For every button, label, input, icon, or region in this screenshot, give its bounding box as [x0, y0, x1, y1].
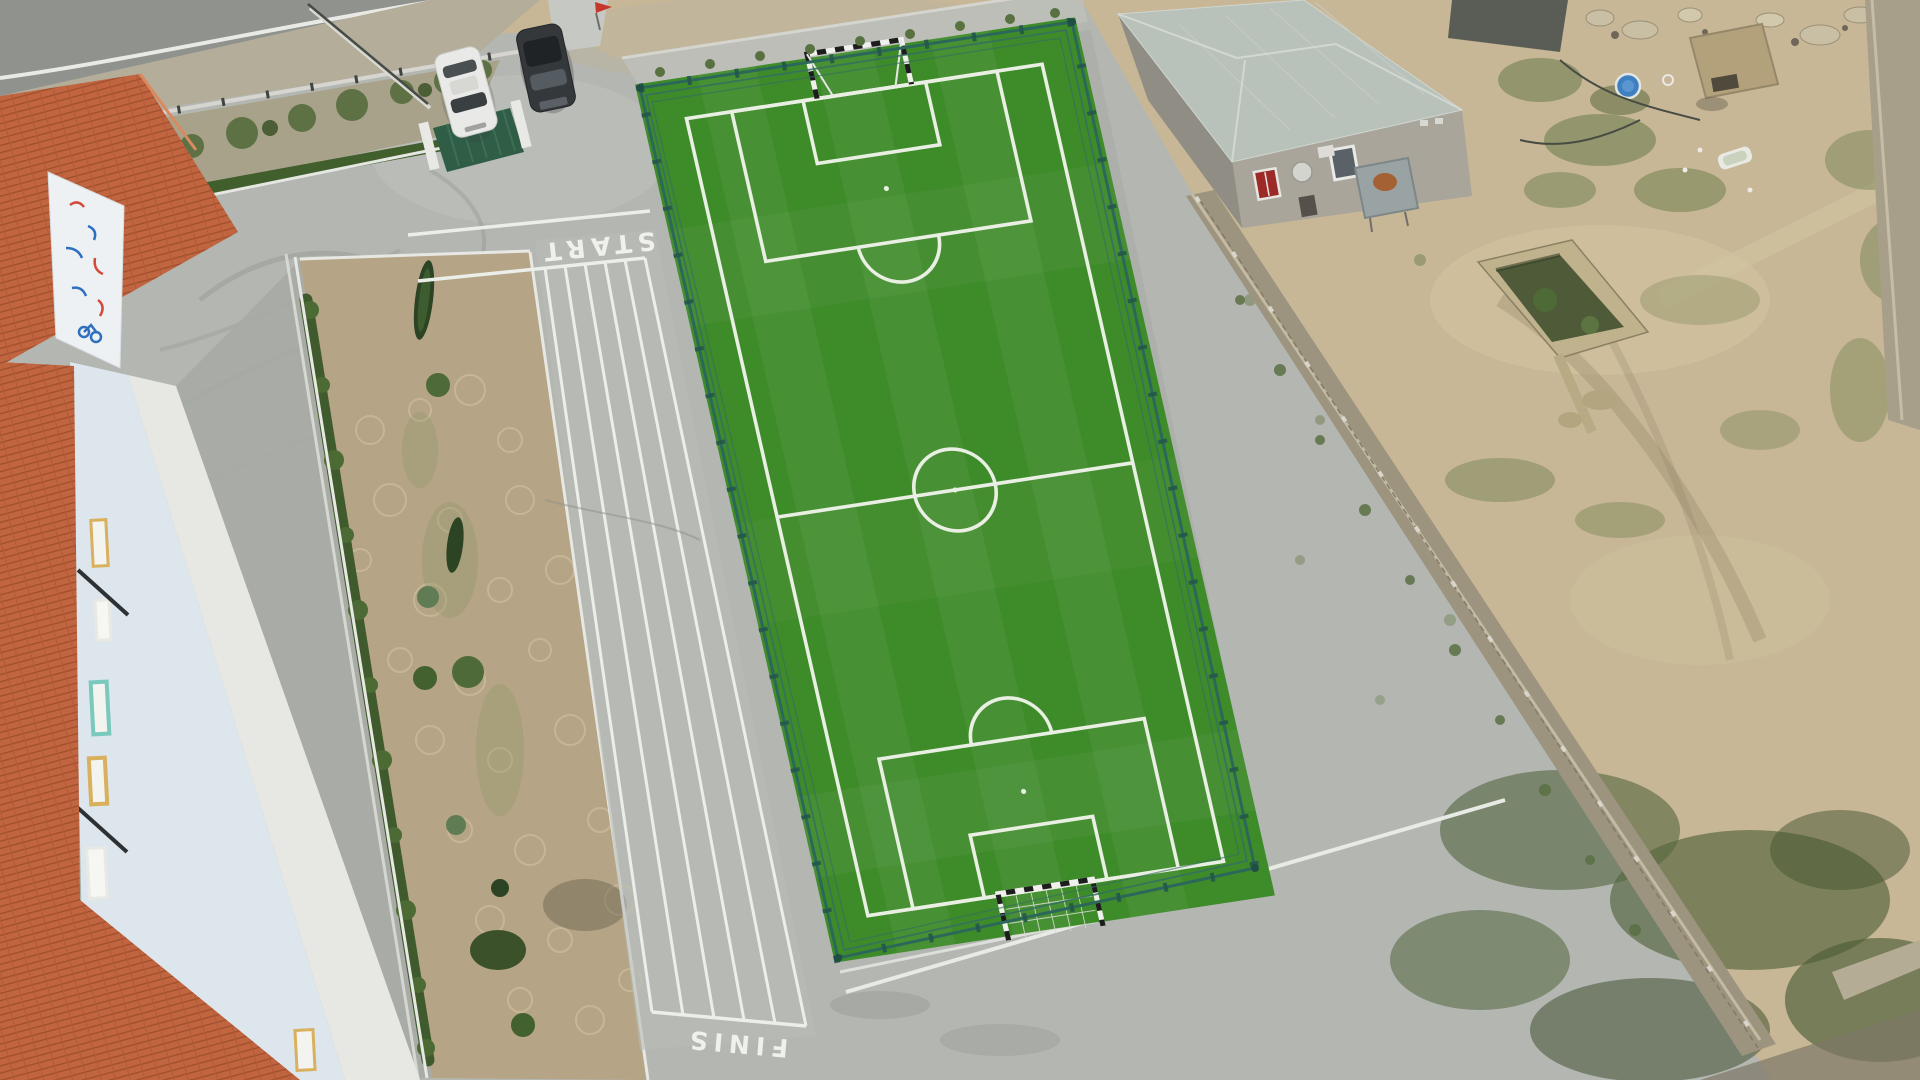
bush — [413, 666, 437, 690]
big-bush — [470, 930, 526, 970]
corner-post — [834, 954, 842, 962]
pine — [452, 656, 484, 688]
bush — [511, 1013, 535, 1037]
corner-post — [636, 84, 644, 92]
bush — [426, 373, 450, 397]
aerial-photo: START FINIS — [0, 0, 1920, 1080]
scene: START FINIS — [0, 0, 1920, 1080]
vent — [1420, 120, 1428, 126]
stain-2 — [940, 1024, 1060, 1056]
corner-post — [1068, 18, 1076, 26]
juniper-blue — [446, 815, 466, 835]
door-opening — [1298, 195, 1317, 217]
rust-patch — [1373, 173, 1397, 191]
vent — [1435, 118, 1443, 124]
corner-post — [1251, 864, 1259, 872]
stain-1 — [830, 991, 930, 1019]
small-tree — [491, 879, 509, 897]
soil-blotch — [543, 879, 627, 931]
juniper — [417, 586, 439, 608]
rubble — [1582, 390, 1618, 410]
mural-gable — [48, 172, 124, 368]
rubble — [1558, 412, 1582, 428]
satellite-dish — [1292, 162, 1312, 182]
